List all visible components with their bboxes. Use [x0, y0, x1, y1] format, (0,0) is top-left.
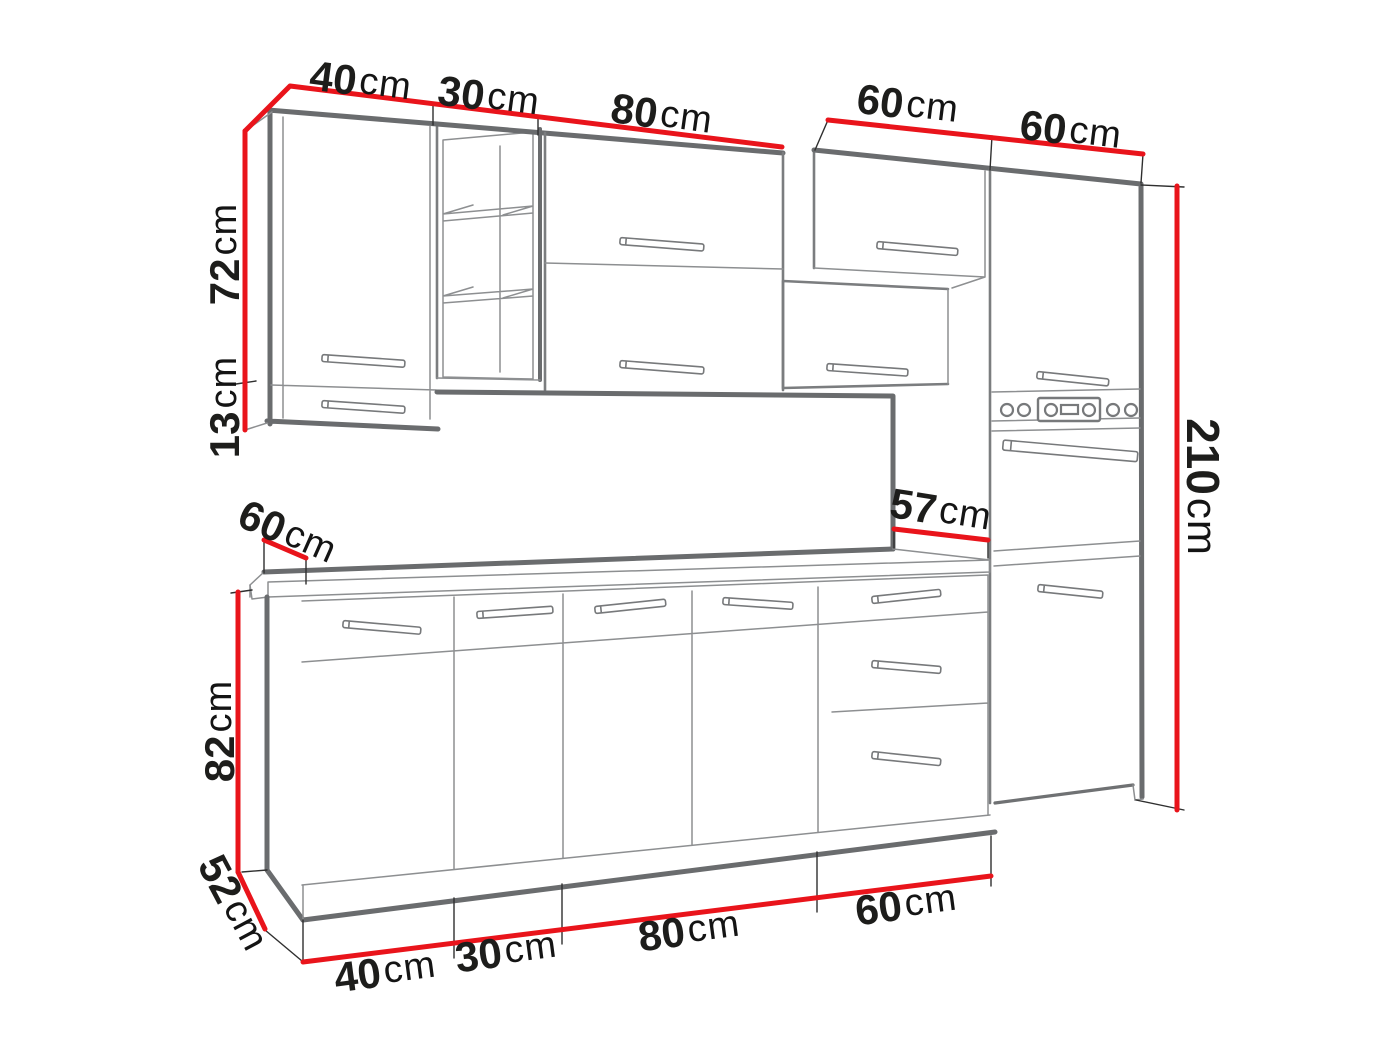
drawer-handle: [872, 752, 941, 766]
kitchen-dimension-diagram: 40cm 30cm 80cm 60cm 60cm 72cm 13cm 210cm…: [0, 0, 1385, 1039]
dimension-labels: 40cm 30cm 80cm 60cm 60cm 72cm 13cm 210cm…: [189, 51, 1229, 1001]
oven-knob: [1018, 404, 1030, 416]
oven-knob: [1083, 404, 1095, 416]
tall-cabinet-bottom: [995, 785, 1133, 803]
drawer-handle: [872, 589, 941, 603]
dimension-extension-lines: [231, 103, 1184, 962]
door-handle: [595, 599, 666, 613]
wall-cabinet-80-division: [545, 263, 783, 269]
open-shelf-unit-30: [437, 124, 540, 380]
door-handle: [322, 355, 405, 368]
base-left-edge: [267, 597, 303, 920]
dim-label-right-210: 210cm: [1177, 418, 1229, 556]
shelf-unit-shelves: [437, 132, 540, 380]
door-handle: [877, 242, 958, 256]
door-handle: [620, 361, 704, 375]
dim-label-bottom-30: 30cm: [452, 921, 560, 981]
oven-knob: [1125, 404, 1137, 416]
wall-cabinet-40: [245, 110, 438, 430]
dim-label-top-60-tall: 60cm: [1017, 100, 1124, 159]
dim-label-left-13: 13cm: [201, 356, 248, 458]
dim-label-bottom-40: 40cm: [331, 941, 439, 1001]
door-handle: [620, 238, 704, 252]
door-handle: [827, 364, 908, 377]
countertop-back-edge: [264, 549, 893, 572]
wall-cabinet-40-door-lines: [245, 112, 436, 430]
dim-label-top-30: 30cm: [435, 66, 543, 126]
oven-knob: [1001, 404, 1013, 416]
tall-oven-cabinet-60: [814, 150, 1143, 803]
dim-label-top-80: 80cm: [608, 84, 716, 145]
dim-label-bottom-60: 60cm: [852, 874, 960, 934]
hood-cabinet-shelf: [814, 171, 985, 384]
door-handle: [1037, 372, 1109, 386]
oven-door-handle: [1003, 440, 1138, 462]
oven-knob: [1107, 404, 1119, 416]
backsplash-outline: [437, 392, 893, 549]
hood-cabinet-edges: [783, 150, 948, 388]
base-cabinet-row: [250, 575, 995, 920]
dim-label-left-72: 72cm: [201, 203, 248, 305]
drawer-handle: [872, 661, 941, 674]
dim-label-base-82: 82cm: [196, 680, 243, 782]
dimension-lines: [238, 86, 1177, 962]
door-handle: [343, 621, 421, 635]
countertop: [250, 549, 990, 599]
dim-label-counter-60: 60cm: [232, 490, 345, 575]
door-handle: [477, 606, 553, 618]
wall-cabinet-80: [437, 124, 783, 390]
door-handle: [723, 598, 793, 610]
diagram-canvas: 40cm 30cm 80cm 60cm 60cm 72cm 13cm 210cm…: [0, 0, 1385, 1039]
oven-display: [1061, 405, 1078, 414]
tall-cabinet-outline: [814, 150, 1142, 797]
oven-control-panel: [1001, 398, 1137, 421]
wall-cabinet-80-sides: [545, 133, 783, 390]
wall-cabinet-40-outline: [267, 110, 438, 429]
oven-knob: [1045, 404, 1057, 416]
dim-label-top-40: 40cm: [307, 51, 415, 111]
dim-label-bottom-80: 80cm: [635, 900, 743, 960]
door-handle: [322, 401, 405, 414]
hood-cabinet-60: [783, 150, 985, 388]
door-handle: [1038, 585, 1103, 599]
